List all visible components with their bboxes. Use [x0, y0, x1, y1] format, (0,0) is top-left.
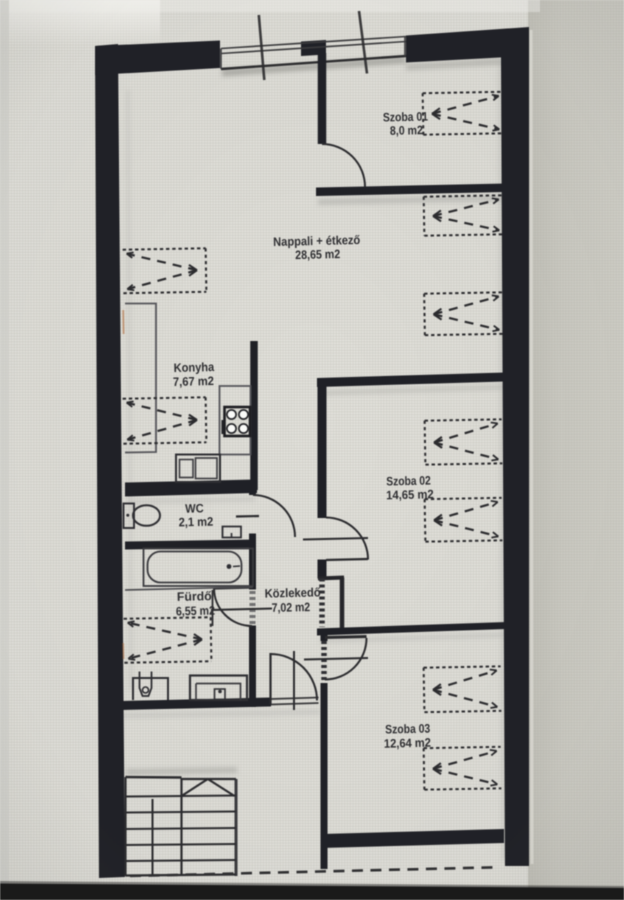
svg-text:12,64 m2: 12,64 m2	[384, 736, 431, 751]
svg-text:Közlekedő: Közlekedő	[264, 585, 321, 600]
svg-text:7,67 m2: 7,67 m2	[173, 374, 214, 389]
svg-text:Nappali + étkező: Nappali + étkező	[273, 233, 361, 249]
svg-text:Konyha: Konyha	[174, 360, 215, 375]
svg-text:2,1 m2: 2,1 m2	[178, 515, 213, 530]
svg-text:WC: WC	[185, 501, 204, 515]
svg-text:14,65 m2: 14,65 m2	[386, 487, 434, 502]
svg-text:Szoba 02: Szoba 02	[386, 473, 431, 488]
svg-text:6,55 m2: 6,55 m2	[176, 604, 215, 619]
svg-text:28,65 m2: 28,65 m2	[295, 247, 340, 262]
svg-text:7,02 m2: 7,02 m2	[272, 600, 311, 615]
svg-text:Szoba 03: Szoba 03	[385, 721, 430, 736]
svg-text:Fürdő: Fürdő	[177, 589, 212, 604]
svg-text:8,0 m2: 8,0 m2	[390, 123, 423, 138]
